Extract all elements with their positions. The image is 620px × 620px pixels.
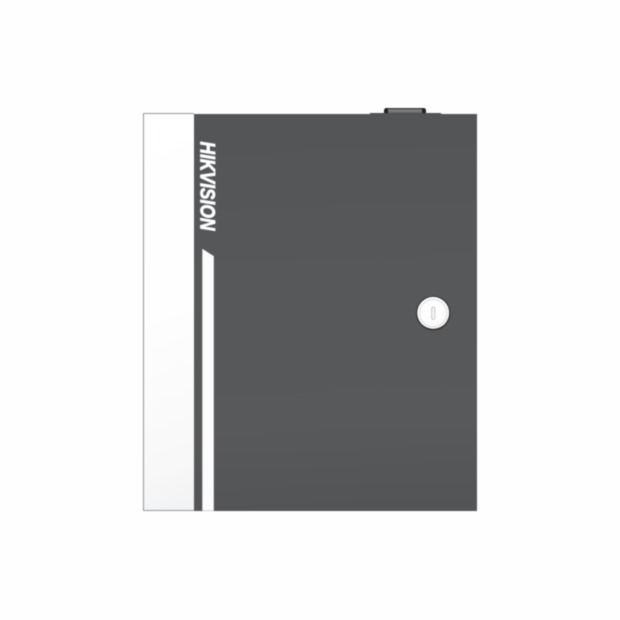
svg-text:HIKVISION: HIKVISION <box>196 142 219 232</box>
